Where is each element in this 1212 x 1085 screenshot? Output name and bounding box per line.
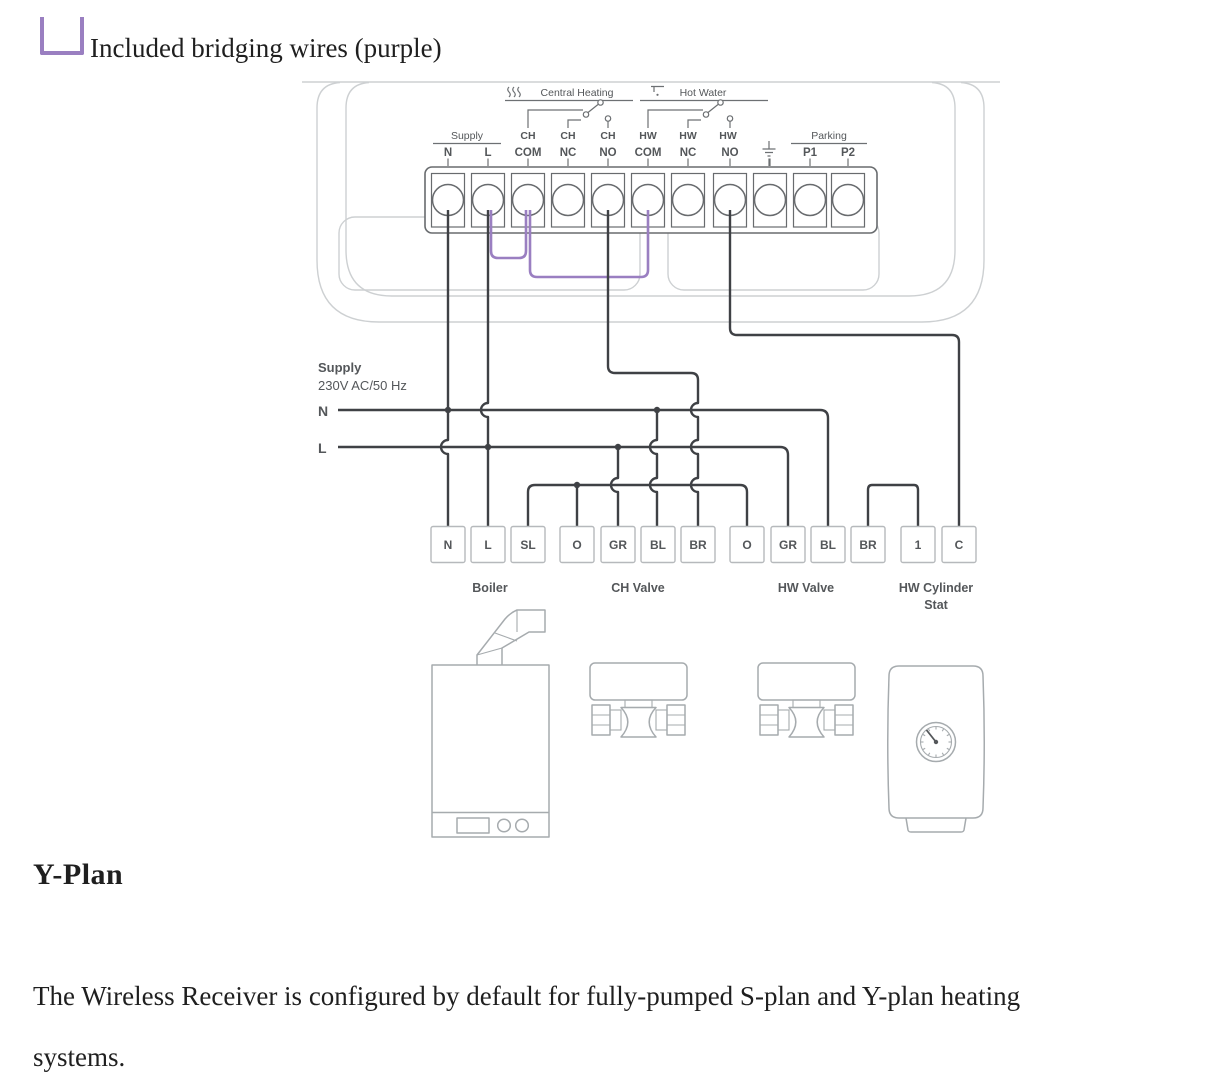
- body-paragraph: The Wireless Receiver is configured by d…: [33, 966, 1020, 1085]
- boiler-label: Boiler: [472, 581, 508, 595]
- hot-water-label: Hot Water: [680, 87, 727, 99]
- cylinder-stat-drawing: [888, 666, 985, 832]
- boiler-drawing: [432, 610, 549, 837]
- wire-l-terminal-to-boiler: [481, 210, 488, 526]
- hw-relay-symbol: [648, 100, 733, 128]
- bridging-wire-icon: [40, 17, 84, 55]
- terminal-label-chno: NO: [599, 147, 616, 159]
- terminal-label-l: L: [484, 147, 491, 159]
- wire-l-line: [338, 447, 788, 526]
- terminal-label-hwno: NO: [721, 147, 738, 159]
- line-n-label: N: [318, 403, 328, 419]
- terminal-label-hw1: HW: [639, 130, 657, 142]
- parking-group-label: Parking: [811, 130, 847, 142]
- hw-valve-drawing: [758, 663, 855, 737]
- earth-ground-icon: [763, 141, 776, 166]
- terminal-label-hw3: HW: [719, 130, 737, 142]
- terminal-label-ch1: CH: [520, 130, 535, 142]
- cyl-stat-label-line1: HW Cylinder: [899, 581, 973, 595]
- bottom-terminal-boxes: NLSLOGRBLBROGRBLBR1C: [431, 527, 976, 563]
- terminal-screw: [553, 185, 584, 216]
- central-heating-label: Central Heating: [541, 87, 614, 99]
- terminal-labels: CH CH CH HW HW HW N L COM NC NO COM NC N…: [444, 130, 855, 159]
- bottom-terminal-label: 1: [915, 538, 922, 552]
- manual-page: Included bridging wires (purple) Central…: [0, 0, 1212, 1085]
- wiring-diagram: Central Heating Hot Water Supply Parking: [290, 78, 1012, 848]
- supply-group-label: Supply: [451, 130, 484, 142]
- bottom-terminal-label: O: [572, 538, 581, 552]
- heat-waves-icon: [508, 87, 521, 97]
- ch-valve-label: CH Valve: [611, 581, 665, 595]
- bottom-terminal-label: SL: [520, 538, 535, 552]
- terminal-label-chnc: NC: [560, 147, 577, 159]
- bottom-terminal-label: N: [444, 538, 453, 552]
- wire-n-line: [338, 410, 828, 526]
- ch-valve-drawing: [590, 663, 687, 737]
- ch-relay-symbol: [528, 100, 611, 128]
- terminal-label-ch3: CH: [600, 130, 615, 142]
- bottom-terminal-label: GR: [609, 538, 627, 552]
- terminal-screw: [673, 185, 704, 216]
- line-l-label: L: [318, 440, 327, 456]
- wire-hwno-to-stat-c: [730, 210, 959, 526]
- terminal-screw: [755, 185, 786, 216]
- bottom-terminal-label: GR: [779, 538, 797, 552]
- cyl-stat-label-line2: Stat: [924, 598, 948, 612]
- bottom-terminal-label: BL: [820, 538, 836, 552]
- bottom-terminal-label: O: [742, 538, 751, 552]
- wire-l-to-chvalve-gr: [611, 447, 618, 526]
- bridging-note: Included bridging wires (purple): [90, 33, 442, 64]
- wire-n-terminal-to-boiler: [441, 210, 448, 526]
- component-labels: Boiler CH Valve HW Valve HW Cylinder Sta…: [472, 581, 973, 612]
- section-title: Y-Plan: [33, 858, 123, 892]
- terminal-label-ch2: CH: [560, 130, 575, 142]
- stat-dial-needle: [927, 730, 937, 742]
- supply-note: Supply 230V AC/50 Hz N L: [318, 360, 407, 456]
- wire-hwvalve-br-to-stat-1: [868, 485, 918, 526]
- bottom-terminal-label: BR: [859, 538, 877, 552]
- terminal-screw: [833, 185, 864, 216]
- supply-title: Supply: [318, 360, 362, 375]
- bottom-terminal-label: BR: [689, 538, 707, 552]
- wire-sl-line: [528, 485, 747, 526]
- terminal-label-hwnc: NC: [680, 147, 697, 159]
- bottom-terminal-label: C: [955, 538, 964, 552]
- stat-dial-center: [934, 740, 938, 744]
- wire-n-to-chvalve-bl: [650, 410, 657, 526]
- terminal-label-hwcom: COM: [635, 147, 662, 159]
- body-line-2: systems.: [33, 1027, 1020, 1085]
- terminal-label-p1: P1: [803, 147, 818, 159]
- bottom-terminal-label: L: [484, 538, 491, 552]
- terminal-screw: [795, 185, 826, 216]
- bottom-terminal-label: BL: [650, 538, 666, 552]
- body-line-1: The Wireless Receiver is configured by d…: [33, 966, 1020, 1027]
- terminal-label-hw2: HW: [679, 130, 697, 142]
- hw-valve-label: HW Valve: [778, 581, 834, 595]
- terminal-label-p2: P2: [841, 147, 855, 159]
- terminal-label-chcom: COM: [515, 147, 542, 159]
- tap-icon: [651, 87, 664, 96]
- supply-voltage: 230V AC/50 Hz: [318, 378, 407, 393]
- terminal-screw: [513, 185, 544, 216]
- terminal-label-n: N: [444, 147, 452, 159]
